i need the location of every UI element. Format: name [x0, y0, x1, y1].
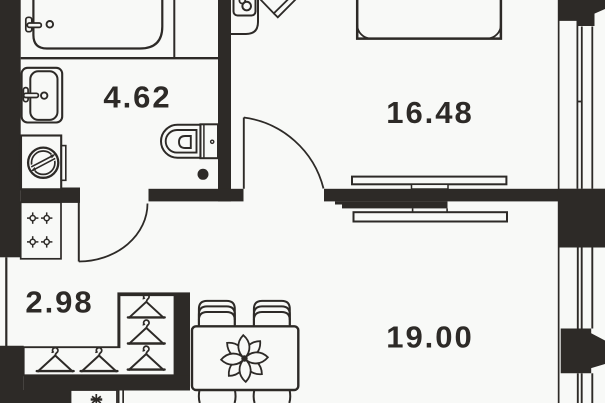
svg-text:16.48: 16.48	[386, 95, 474, 130]
svg-text:4.62: 4.62	[103, 80, 171, 115]
svg-text:19.00: 19.00	[386, 320, 474, 355]
svg-text:2.98: 2.98	[25, 285, 93, 320]
